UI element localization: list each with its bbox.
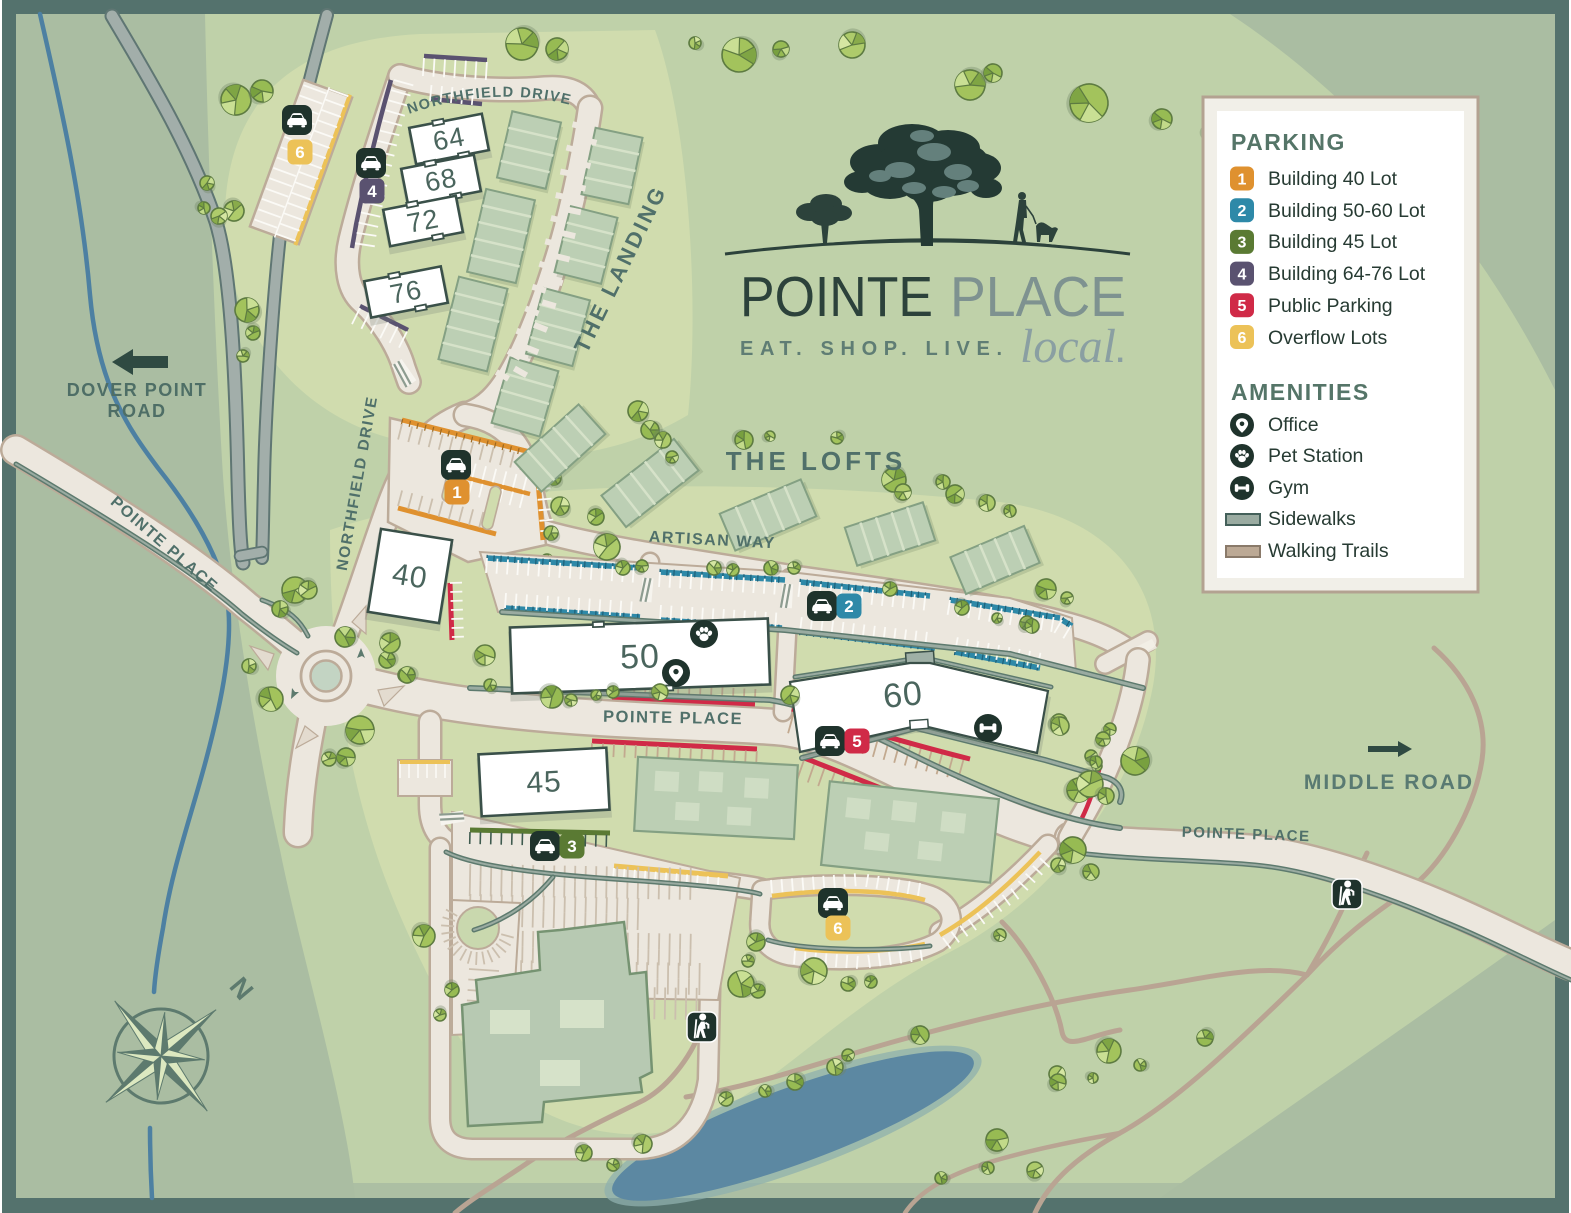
svg-text:4: 4 xyxy=(367,182,377,201)
svg-text:45: 45 xyxy=(525,765,562,800)
svg-text:Gym: Gym xyxy=(1268,477,1309,499)
svg-text:3: 3 xyxy=(567,837,576,856)
svg-text:EAT. SHOP. LIVE.: EAT. SHOP. LIVE. xyxy=(740,338,1002,360)
svg-text:68: 68 xyxy=(422,162,459,198)
svg-text:6: 6 xyxy=(1238,330,1247,347)
svg-text:Building 40 Lot: Building 40 Lot xyxy=(1268,168,1398,190)
svg-text:MIDDLE ROAD: MIDDLE ROAD xyxy=(1304,771,1474,794)
svg-text:1: 1 xyxy=(452,483,461,502)
svg-text:72: 72 xyxy=(404,203,441,239)
svg-text:Building 64-76 Lot: Building 64-76 Lot xyxy=(1268,263,1426,285)
svg-text:POINTE PLACE: POINTE PLACE xyxy=(603,708,743,728)
svg-text:POINTE: POINTE xyxy=(740,265,933,329)
svg-text:3: 3 xyxy=(1238,235,1247,252)
svg-text:THE LOFTS: THE LOFTS xyxy=(726,446,906,476)
svg-text:Walking Trails: Walking Trails xyxy=(1268,540,1389,562)
svg-text:ROAD: ROAD xyxy=(108,401,167,421)
svg-text:Overflow Lots: Overflow Lots xyxy=(1268,327,1387,349)
svg-text:Pet Station: Pet Station xyxy=(1268,445,1363,467)
svg-text:6: 6 xyxy=(295,143,304,162)
svg-text:50: 50 xyxy=(619,637,660,676)
svg-text:5: 5 xyxy=(852,732,861,751)
svg-text:6: 6 xyxy=(833,919,842,938)
svg-text:AMENITIES: AMENITIES xyxy=(1231,379,1370,405)
svg-text:5: 5 xyxy=(1238,298,1247,315)
svg-text:64: 64 xyxy=(430,121,467,157)
svg-text:Office: Office xyxy=(1268,414,1319,436)
svg-text:Sidewalks: Sidewalks xyxy=(1268,508,1356,530)
svg-text:2: 2 xyxy=(1238,203,1247,220)
svg-text:4: 4 xyxy=(1238,266,1247,283)
svg-text:40: 40 xyxy=(390,557,430,595)
svg-text:Public Parking: Public Parking xyxy=(1268,295,1393,317)
svg-text:DOVER POINT: DOVER POINT xyxy=(67,380,208,400)
svg-text:Building 45 Lot: Building 45 Lot xyxy=(1268,231,1398,253)
svg-text:2: 2 xyxy=(844,597,853,616)
svg-text:Building 50-60 Lot: Building 50-60 Lot xyxy=(1268,200,1426,222)
svg-text:60: 60 xyxy=(881,674,925,716)
svg-text:76: 76 xyxy=(387,274,424,310)
svg-text:PARKING: PARKING xyxy=(1231,129,1346,155)
svg-text:.: . xyxy=(1116,336,1124,369)
svg-text:1: 1 xyxy=(1238,171,1247,188)
svg-text:local: local xyxy=(1020,320,1116,373)
